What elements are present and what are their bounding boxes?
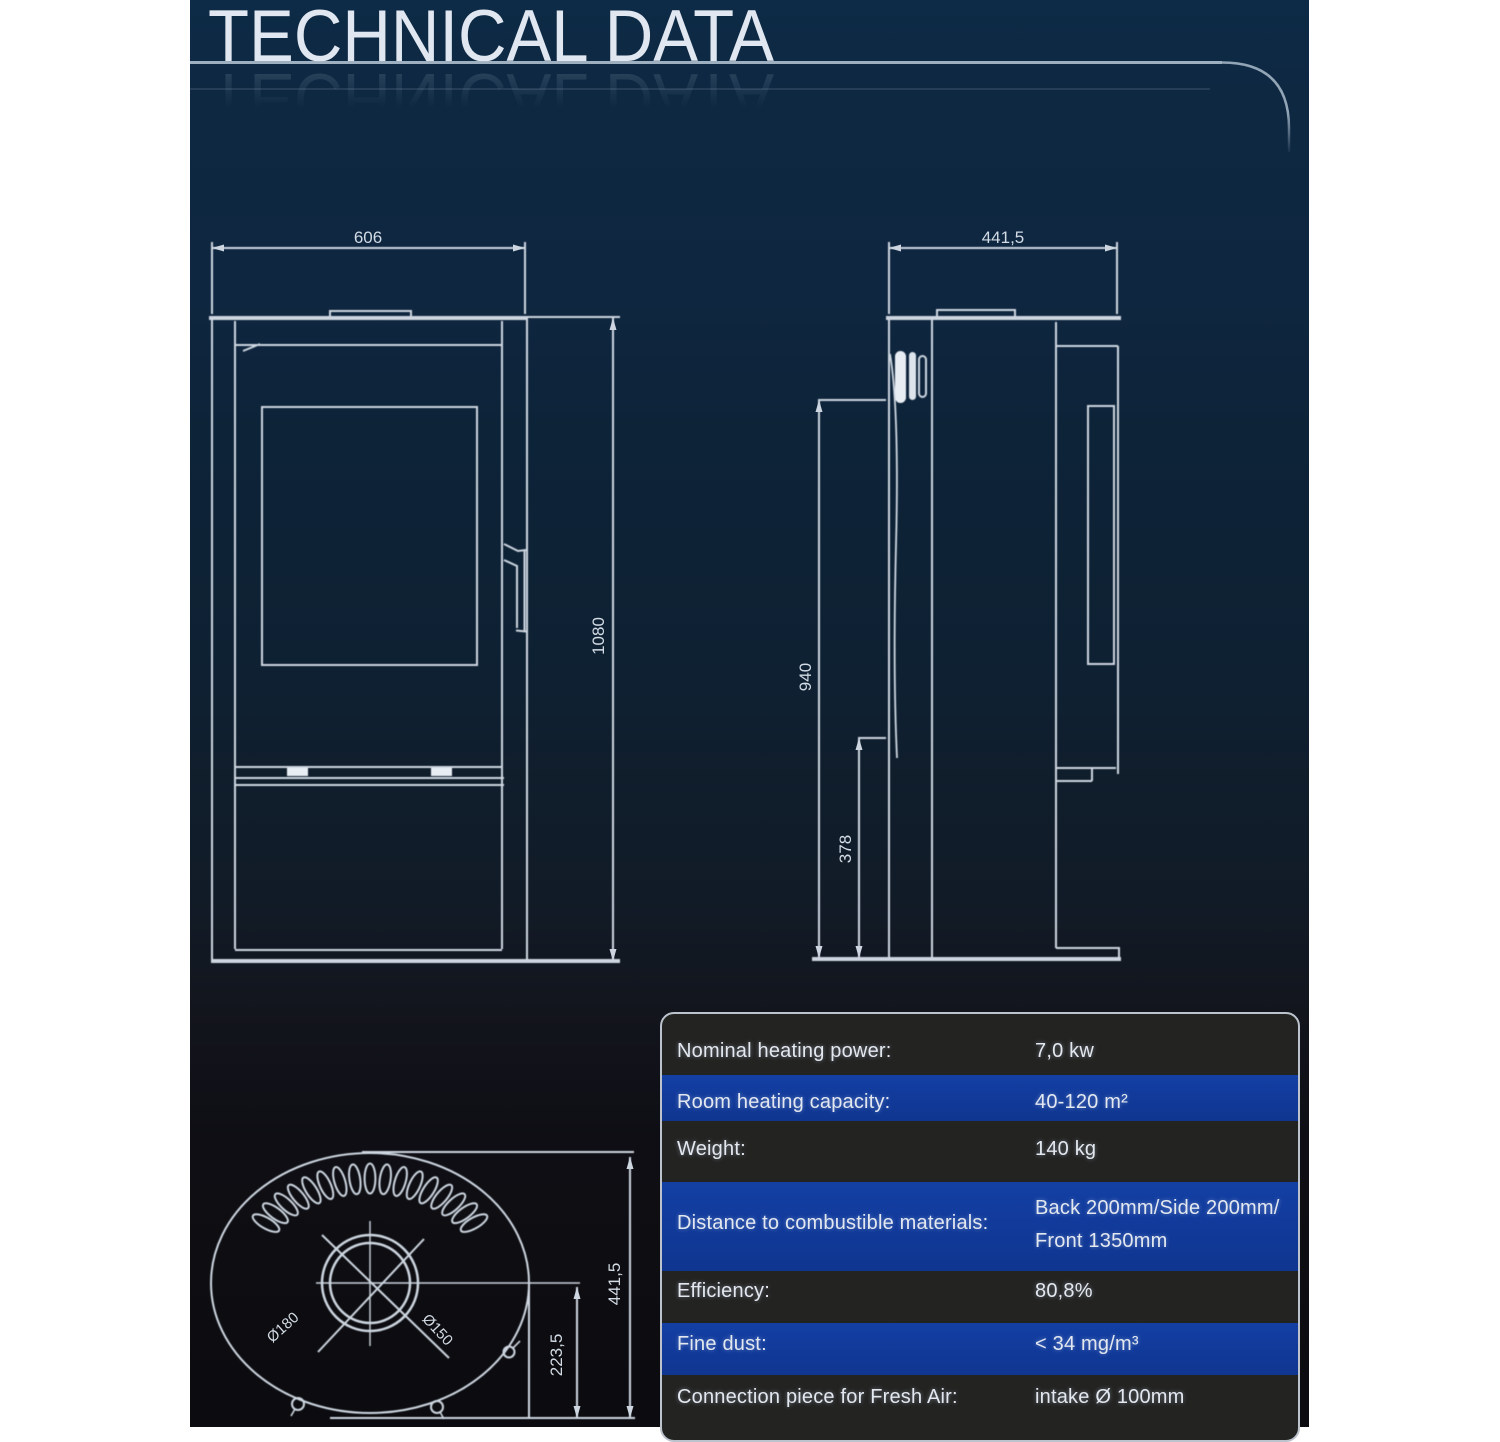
svg-text:441,5: 441,5 bbox=[605, 1263, 624, 1306]
svg-text:Ø150: Ø150 bbox=[419, 1311, 456, 1349]
svg-text:378: 378 bbox=[836, 835, 855, 863]
svg-text:606: 606 bbox=[354, 228, 382, 247]
svg-text:441,5: 441,5 bbox=[982, 228, 1025, 247]
svg-text:1080: 1080 bbox=[589, 617, 608, 655]
svg-text:223,5: 223,5 bbox=[547, 1334, 566, 1377]
svg-text:Ø180: Ø180 bbox=[264, 1309, 303, 1346]
svg-text:940: 940 bbox=[796, 663, 815, 691]
